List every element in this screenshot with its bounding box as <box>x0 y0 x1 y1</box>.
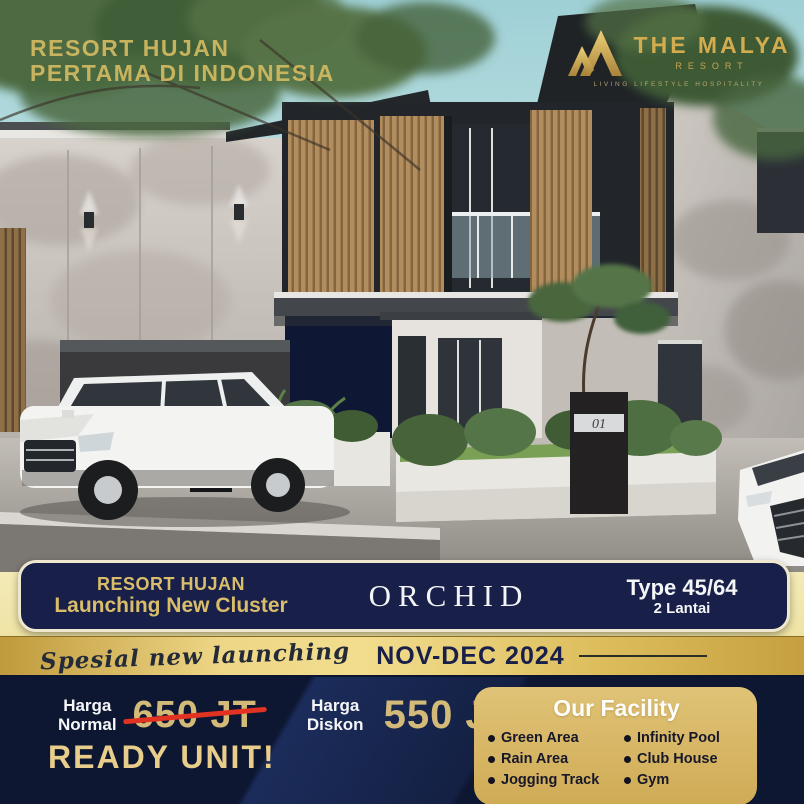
unit-number-sign: 01 <box>570 392 628 514</box>
unit-number-text: 01 <box>592 417 606 432</box>
normal-price: 650 JT <box>133 694 257 737</box>
pricing-section: Harga Normal 650 JT Harga Diskon 550 JT … <box>0 677 804 804</box>
cluster-name: ORCHID <box>321 578 577 614</box>
bullet-dot-icon <box>624 735 631 742</box>
banner-left-text: RESORT HUJAN Launching New Cluster <box>21 574 321 619</box>
promo-poster: 01 <box>0 0 804 804</box>
headline-line2: PERTAMA DI INDONESIA <box>30 61 335 86</box>
facility-item: Green Area <box>488 728 624 749</box>
facility-item: Infinity Pool <box>624 728 745 749</box>
headline-line1: RESORT HUJAN <box>30 36 335 61</box>
headline: RESORT HUJAN PERTAMA DI INDONESIA <box>30 36 335 86</box>
type-label: Type 45/64 <box>577 575 787 600</box>
bullet-dot-icon <box>624 756 631 763</box>
facility-item: Rain Area <box>488 749 624 770</box>
normal-price-label: Harga Normal <box>58 697 117 734</box>
house-render-photo: 01 <box>0 0 804 572</box>
facility-item: Club House <box>624 749 745 770</box>
brand-subtitle: RESORT <box>634 61 791 71</box>
promo-script-text: Spesial new launching <box>40 637 351 675</box>
bullet-dot-icon <box>488 735 495 742</box>
brand-tagline: LIVING LIFESTYLE HOSPITALITY <box>556 81 802 88</box>
brand-logo: THE MALYA RESORT LIVING LIFESTYLE HOSPIT… <box>556 26 802 88</box>
bullet-dot-icon <box>624 777 631 784</box>
brand-name: THE MALYA <box>634 32 791 59</box>
banner-launching-line: Launching New Cluster <box>21 594 321 618</box>
facility-item: Gym <box>624 770 745 791</box>
facility-item: Jogging Track <box>488 770 624 791</box>
promo-strip: Spesial new launching NOV-DEC 2024 <box>0 636 804 677</box>
facility-title: Our Facility <box>488 695 745 722</box>
facility-box: Our Facility Green Area Rain Area Joggin… <box>474 687 757 804</box>
banner-type-block: Type 45/64 2 Lantai <box>577 575 787 618</box>
cluster-banner: RESORT HUJAN Launching New Cluster ORCHI… <box>18 560 790 632</box>
dash-line <box>579 655 707 657</box>
bullet-dot-icon <box>488 756 495 763</box>
mountain-logo-icon <box>568 26 626 76</box>
promo-period: NOV-DEC 2024 <box>376 642 564 671</box>
bullet-dot-icon <box>488 777 495 784</box>
ready-unit-text: READY UNIT! <box>48 739 276 776</box>
floors-label: 2 Lantai <box>577 600 787 617</box>
banner-resort-line: RESORT HUJAN <box>21 574 321 595</box>
discount-price-label: Harga Diskon <box>307 697 364 734</box>
